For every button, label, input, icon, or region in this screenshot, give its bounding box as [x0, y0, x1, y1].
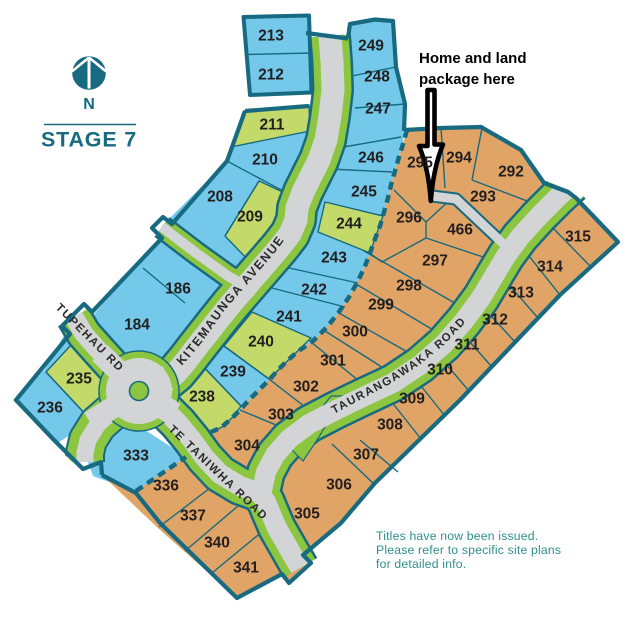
svg-text:340: 340 — [204, 535, 230, 552]
svg-text:466: 466 — [447, 222, 473, 239]
svg-text:236: 236 — [37, 400, 63, 417]
svg-text:298: 298 — [396, 278, 422, 295]
svg-text:306: 306 — [326, 477, 352, 494]
svg-text:297: 297 — [422, 253, 448, 270]
svg-text:301: 301 — [320, 353, 346, 370]
svg-text:241: 241 — [276, 309, 302, 326]
svg-text:304: 304 — [234, 438, 260, 455]
svg-text:212: 212 — [258, 67, 284, 84]
svg-text:314: 314 — [537, 259, 563, 276]
svg-text:package here: package here — [419, 71, 515, 88]
svg-text:235: 235 — [66, 371, 92, 388]
svg-text:302: 302 — [293, 379, 319, 396]
svg-text:315: 315 — [565, 229, 591, 246]
svg-text:245: 245 — [351, 184, 377, 201]
svg-text:336: 336 — [153, 478, 179, 495]
svg-text:242: 242 — [301, 282, 327, 299]
svg-text:249: 249 — [358, 38, 384, 55]
svg-text:N: N — [83, 96, 95, 113]
svg-text:240: 240 — [248, 334, 274, 351]
svg-text:Titles have now been issued.: Titles have now been issued. — [376, 529, 538, 543]
svg-text:208: 208 — [207, 189, 233, 206]
svg-text:184: 184 — [124, 317, 150, 334]
svg-text:210: 210 — [252, 152, 278, 169]
svg-text:294: 294 — [446, 150, 472, 167]
svg-text:311: 311 — [454, 337, 479, 354]
svg-text:238: 238 — [189, 389, 215, 406]
svg-text:239: 239 — [220, 364, 246, 381]
svg-text:310: 310 — [427, 362, 453, 379]
svg-text:295: 295 — [407, 155, 433, 172]
svg-text:309: 309 — [399, 391, 425, 408]
svg-text:for detailed info.: for detailed info. — [376, 557, 466, 571]
svg-text:209: 209 — [237, 209, 263, 226]
svg-text:305: 305 — [294, 506, 320, 523]
svg-text:307: 307 — [353, 447, 379, 464]
svg-text:313: 313 — [508, 285, 534, 302]
svg-text:299: 299 — [368, 297, 394, 314]
svg-text:186: 186 — [165, 281, 191, 298]
svg-text:Home and land: Home and land — [419, 50, 527, 67]
svg-text:303: 303 — [268, 407, 294, 424]
svg-text:296: 296 — [396, 210, 422, 227]
svg-text:312: 312 — [482, 312, 508, 329]
svg-text:Please refer to specific site: Please refer to specific site plans — [376, 543, 561, 557]
svg-text:300: 300 — [342, 324, 368, 341]
svg-text:337: 337 — [180, 508, 206, 525]
svg-text:333: 333 — [123, 448, 149, 465]
svg-text:292: 292 — [498, 164, 524, 181]
svg-text:341: 341 — [233, 560, 259, 577]
svg-text:211: 211 — [259, 117, 284, 134]
svg-text:246: 246 — [358, 150, 384, 167]
svg-text:STAGE 7: STAGE 7 — [41, 128, 137, 152]
svg-text:243: 243 — [321, 250, 347, 267]
svg-text:213: 213 — [258, 28, 284, 45]
svg-text:293: 293 — [470, 189, 496, 206]
svg-text:244: 244 — [336, 216, 362, 233]
svg-text:308: 308 — [377, 417, 403, 434]
svg-text:248: 248 — [364, 69, 390, 86]
svg-text:247: 247 — [365, 101, 391, 118]
